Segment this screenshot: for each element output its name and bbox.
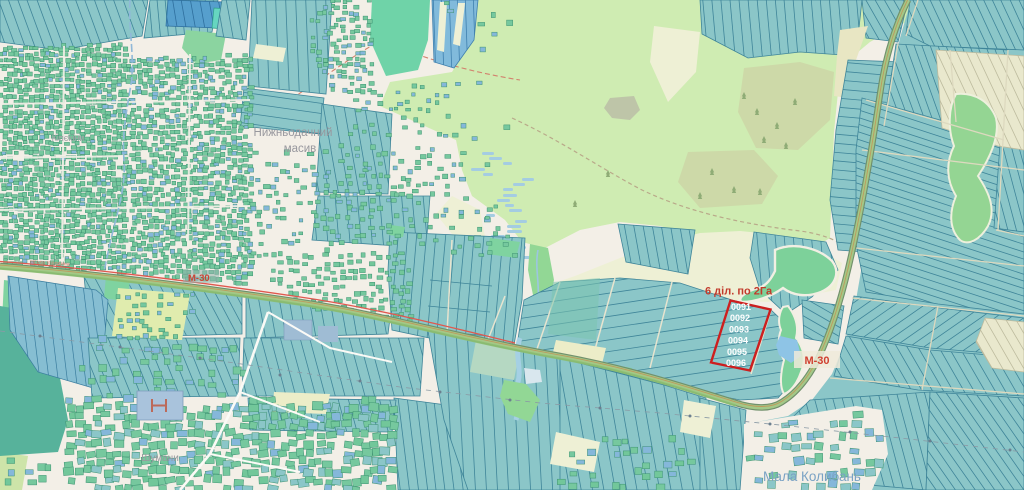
svg-text:0096: 0096: [726, 358, 746, 368]
svg-text:Кіпєкіни: Кіпєкіни: [52, 133, 85, 143]
svg-text:6 діл. по 2Га: 6 діл. по 2Га: [705, 286, 773, 298]
svg-text:М-30: М-30: [804, 355, 829, 367]
svg-text:0095: 0095: [727, 347, 747, 357]
svg-text:0091: 0091: [731, 302, 751, 312]
svg-text:Нижньодачний: Нижньодачний: [254, 127, 333, 139]
svg-text:0094: 0094: [728, 336, 748, 346]
svg-text:масив: масив: [284, 143, 317, 155]
svg-text:0093: 0093: [729, 324, 749, 334]
svg-text:М-30: М-30: [188, 273, 210, 284]
svg-text:Мала Колибань: Мала Колибань: [763, 469, 861, 484]
svg-text:0092: 0092: [730, 313, 750, 323]
svg-text:Шумани: Шумани: [141, 453, 179, 464]
